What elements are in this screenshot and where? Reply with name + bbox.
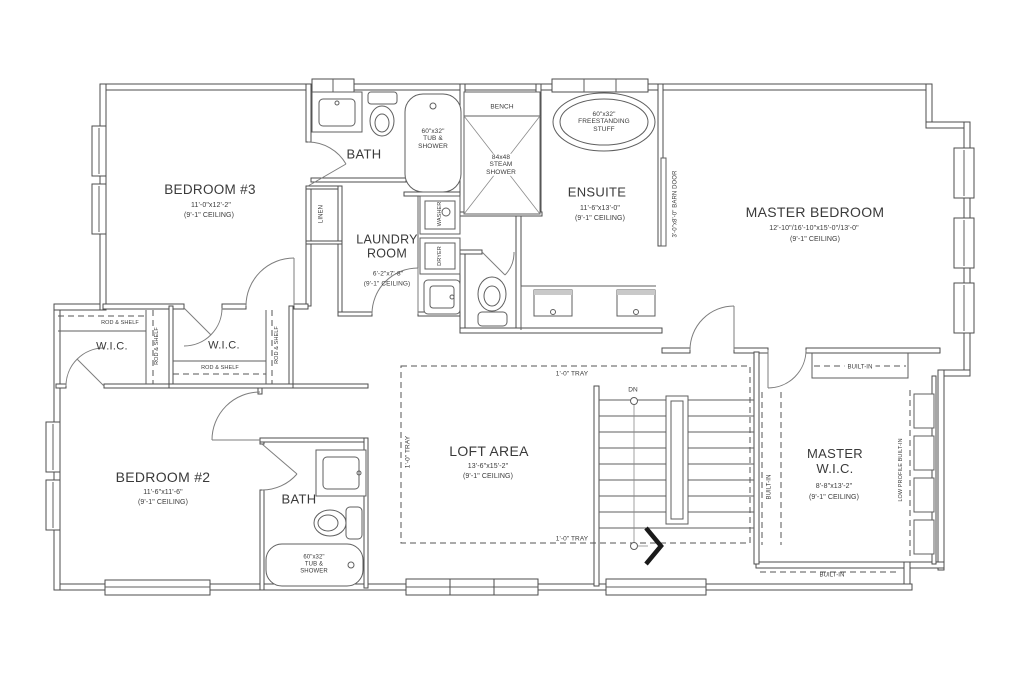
dims-loft: 13'-6"x15'-2" xyxy=(468,463,508,471)
direction-arrow-icon xyxy=(646,528,661,564)
builtin-label-top: BUILT-IN xyxy=(844,365,875,372)
builtin-label-left: BUILT-IN xyxy=(767,474,774,499)
toilet-icon xyxy=(314,510,346,536)
washer-label: WASHER xyxy=(437,202,443,227)
stairs xyxy=(599,396,754,564)
ceiling-laundry: (9'-1" CEILING) xyxy=(364,280,411,287)
room-label-bedroom3: BEDROOM #3 xyxy=(164,182,256,198)
barn-door-label: 3'-0"x8'-0" BARN DOOR xyxy=(673,171,680,238)
dims-master-wic: 8'-8"x13'-2" xyxy=(816,483,852,491)
steam-shower-label: 84x48 STEAM SHOWER xyxy=(483,154,519,176)
closet-shelving xyxy=(58,310,272,384)
dryer-label: DRYER xyxy=(437,246,443,266)
bench-label: BENCH xyxy=(490,103,513,110)
room-label-bedroom2: BEDROOM #2 xyxy=(116,469,211,485)
linen-label: LINEN xyxy=(319,205,326,223)
toilet-icon xyxy=(368,92,397,104)
freestanding-tub-label: 60"x32" FREESTANDING STUFF xyxy=(578,111,630,133)
room-label-wic-right: W.I.C. xyxy=(208,340,240,353)
tray-label-top: 1'-0" TRAY xyxy=(553,370,591,377)
ceiling-loft: (9'-1" CEILING) xyxy=(463,473,513,481)
room-label-ensuite: ENSUITE xyxy=(568,186,626,201)
rod-shelf-label: ROD & SHELF xyxy=(101,320,139,326)
low-profile-builtin-label: LOW PROFILE BUILT-IN xyxy=(898,438,904,501)
floor-plan: BEDROOM #3 11'-0"x12'-2" (9'-1" CEILING)… xyxy=(0,0,1024,682)
room-label-wic-left: W.I.C. xyxy=(96,341,128,354)
tray-label-left: 1'-0" TRAY xyxy=(404,433,411,471)
rod-shelf-label: ROD & SHELF xyxy=(154,327,160,365)
dims-bedroom3: 11'-0"x12'-2" xyxy=(191,202,231,210)
room-label-master-bedroom: MASTER BEDROOM xyxy=(746,204,885,220)
room-label-master-wic: MASTER W.I.C. xyxy=(807,447,863,477)
builtin-label-bottom: BUILT-IN xyxy=(816,573,847,580)
ceiling-bedroom3: (9'-1" CEILING) xyxy=(184,212,234,220)
room-label-loft: LOFT AREA xyxy=(449,443,528,459)
ceiling-bedroom2: (9'-1" CEILING) xyxy=(138,499,188,507)
tray-label-bottom: 1'-0" TRAY xyxy=(553,535,591,542)
ceiling-master-bedroom: (9'-1" CEILING) xyxy=(790,236,840,244)
tub-label-upper: 60"x32" TUB & SHOWER xyxy=(418,128,448,150)
room-label-laundry: LAUNDRY ROOM xyxy=(356,233,418,262)
dims-laundry: 6'-2"x7'-8" xyxy=(373,270,403,277)
barn-door-panel xyxy=(661,158,666,246)
stair-railing xyxy=(666,396,688,524)
room-label-bath-upper: BATH xyxy=(347,148,382,163)
tub-label-lower: 60"x32" TUB & SHOWER xyxy=(300,555,328,576)
dims-master-bedroom: 12'-10"/16'-10"x15'-0"/13'-0" xyxy=(769,225,858,233)
utility-sink-icon xyxy=(424,280,460,314)
ceiling-master-wic: (9'-1" CEILING) xyxy=(809,494,859,502)
rod-shelf-label: ROD & SHELF xyxy=(274,326,280,364)
dims-bedroom2: 11'-6"x11'-6" xyxy=(143,489,182,497)
stairs-dn-label: DN xyxy=(628,386,638,393)
room-label-bath-lower: BATH xyxy=(282,493,317,508)
dims-ensuite: 11'-6"x13'-0" xyxy=(580,205,620,213)
rod-shelf-label: ROD & SHELF xyxy=(201,365,239,371)
ceiling-ensuite: (9'-1" CEILING) xyxy=(575,215,625,223)
